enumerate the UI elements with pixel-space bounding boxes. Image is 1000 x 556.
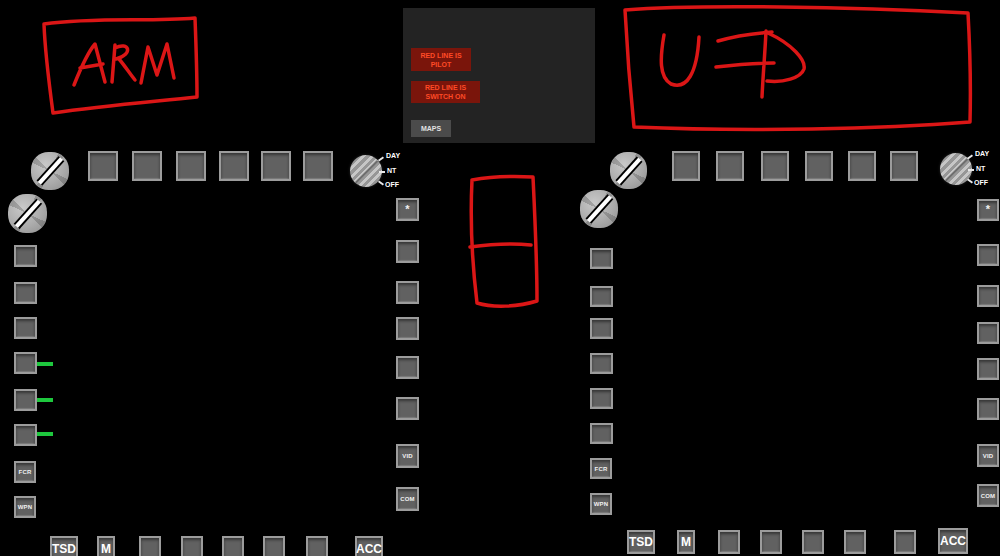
mfd-right-left-button-3[interactable] <box>590 318 613 339</box>
mfd-left-right-button-1[interactable] <box>396 240 419 263</box>
mfd-left-bottom-button-2[interactable] <box>181 536 203 556</box>
mfd-left-fcr-button[interactable]: FCR <box>14 461 36 483</box>
annotation-arm-text <box>74 44 174 85</box>
alert-line: RED LINE IS <box>420 51 461 60</box>
indicator-line-1 <box>37 362 53 366</box>
alert-line: RED LINE IS <box>425 83 466 92</box>
nt-tick <box>379 171 385 173</box>
mfd-right-right-button-3[interactable] <box>977 322 999 344</box>
mfd-left-right-button-3[interactable] <box>396 317 419 340</box>
mfd-right-top-button-6[interactable] <box>890 151 918 181</box>
nt-label: NT <box>387 167 396 174</box>
mfd-right-com-button[interactable]: COM <box>977 484 999 507</box>
mfd-left-bottom-button-4[interactable] <box>263 536 285 556</box>
mfd-left-lower-knob[interactable] <box>8 194 47 233</box>
mfd-left-right-button-5[interactable] <box>396 397 419 420</box>
mfd-left-top-button-2[interactable] <box>132 151 162 181</box>
off-tick <box>378 180 384 185</box>
mfd-right-star-button[interactable]: * <box>977 199 999 221</box>
nt-tick <box>968 169 974 171</box>
alert-line: SWITCH ON <box>425 92 465 101</box>
mfd-left-top-button-4[interactable] <box>219 151 249 181</box>
day-tick <box>378 156 384 161</box>
mfd-right-bottom-button-1[interactable] <box>718 530 740 554</box>
mfd-right-top-button-3[interactable] <box>761 151 789 181</box>
annotation-arm <box>44 18 197 113</box>
knob-indicator-stripe <box>585 194 613 224</box>
mfd-right-left-button-4[interactable] <box>590 353 613 374</box>
annotation-ufd <box>625 7 970 130</box>
mfd-left-m-button[interactable]: M <box>97 536 115 556</box>
annotation-split-box-divider <box>470 244 531 247</box>
maps-button[interactable]: MAPS <box>411 120 451 137</box>
mfd-left-left-button-6[interactable] <box>14 424 37 446</box>
day-label: DAY <box>975 150 989 157</box>
mfd-right-top-button-5[interactable] <box>848 151 876 181</box>
off-tick <box>967 178 973 183</box>
annotation-ufd-text <box>661 31 804 97</box>
mfd-right-right-button-2[interactable] <box>977 285 999 307</box>
off-label: OFF <box>385 181 399 188</box>
mfd-left-wpn-button[interactable]: WPN <box>14 496 36 518</box>
indicator-line-2 <box>37 398 53 402</box>
day-tick <box>967 154 973 159</box>
mfd-left-left-button-3[interactable] <box>14 317 37 339</box>
mfd-left-right-button-2[interactable] <box>396 281 419 304</box>
mfd-right-top-button-2[interactable] <box>716 151 744 181</box>
mfd-right-fcr-button[interactable]: FCR <box>590 458 612 479</box>
mfd-left-top-button-6[interactable] <box>303 151 333 181</box>
cockpit-panel: RED LINE IS PILOT RED LINE IS SWITCH ON … <box>0 0 1000 556</box>
mfd-right-bottom-button-5[interactable] <box>894 530 916 554</box>
nt-label: NT <box>976 165 985 172</box>
alert-line: PILOT <box>431 60 452 69</box>
mfd-right-tsd-button[interactable]: TSD <box>627 530 655 554</box>
mfd-right-right-button-1[interactable] <box>977 244 999 266</box>
mfd-left-left-button-4[interactable] <box>14 352 37 374</box>
mfd-left-acc-button[interactable]: ACC <box>355 536 383 556</box>
mfd-right-right-button-4[interactable] <box>977 358 999 380</box>
mfd-left-left-button-5[interactable] <box>14 389 37 411</box>
ufd-alert-red-line-switch-on[interactable]: RED LINE IS SWITCH ON <box>411 81 480 103</box>
mfd-right-bottom-button-3[interactable] <box>802 530 824 554</box>
off-label: OFF <box>974 179 988 186</box>
mfd-right-vid-button[interactable]: VID <box>977 444 999 467</box>
mfd-right-lower-knob[interactable] <box>580 190 618 228</box>
mfd-left-top-button-3[interactable] <box>176 151 206 181</box>
mfd-right-left-button-5[interactable] <box>590 388 613 409</box>
mfd-right-m-button[interactable]: M <box>677 530 695 554</box>
knob-indicator-stripe <box>36 156 64 186</box>
mfd-left-bottom-button-1[interactable] <box>139 536 161 556</box>
mfd-left-right-button-4[interactable] <box>396 356 419 379</box>
mfd-right-top-button-1[interactable] <box>672 151 700 181</box>
knob-indicator-stripe <box>13 198 41 228</box>
mfd-left-com-button[interactable]: COM <box>396 487 419 511</box>
mfd-left-upper-knob[interactable] <box>31 152 69 190</box>
ufd-alert-red-line-pilot[interactable]: RED LINE IS PILOT <box>411 48 471 71</box>
mfd-left-vid-button[interactable]: VID <box>396 444 419 468</box>
mfd-left-left-button-2[interactable] <box>14 282 37 304</box>
mfd-left-tsd-button[interactable]: TSD <box>50 536 78 556</box>
mfd-right-acc-button[interactable]: ACC <box>938 528 968 554</box>
annotation-ufd-box <box>625 7 970 130</box>
mfd-left-top-button-1[interactable] <box>88 151 118 181</box>
knob-indicator-stripe <box>615 156 642 185</box>
mfd-left-top-button-5[interactable] <box>261 151 291 181</box>
mfd-right-upper-knob[interactable] <box>610 152 647 189</box>
mfd-right-top-button-4[interactable] <box>805 151 833 181</box>
mfd-right-bottom-button-4[interactable] <box>844 530 866 554</box>
ufd-display-panel: RED LINE IS PILOT RED LINE IS SWITCH ON … <box>403 8 595 143</box>
mfd-right-left-button-6[interactable] <box>590 423 613 444</box>
annotation-arm-box <box>44 18 197 113</box>
mfd-right-right-button-5[interactable] <box>977 398 999 420</box>
day-label: DAY <box>386 152 400 159</box>
mfd-left-star-button[interactable]: * <box>396 198 419 221</box>
annotation-split-box <box>470 176 537 306</box>
mfd-left-bottom-button-3[interactable] <box>222 536 244 556</box>
mfd-left-bottom-button-5[interactable] <box>306 536 328 556</box>
annotation-split-box-outline <box>471 176 537 306</box>
mfd-right-bottom-button-2[interactable] <box>760 530 782 554</box>
mfd-right-left-button-2[interactable] <box>590 286 613 307</box>
mfd-left-left-button-1[interactable] <box>14 245 37 267</box>
mfd-right-left-button-1[interactable] <box>590 248 613 269</box>
mfd-right-wpn-button[interactable]: WPN <box>590 493 612 515</box>
indicator-line-3 <box>37 432 53 436</box>
